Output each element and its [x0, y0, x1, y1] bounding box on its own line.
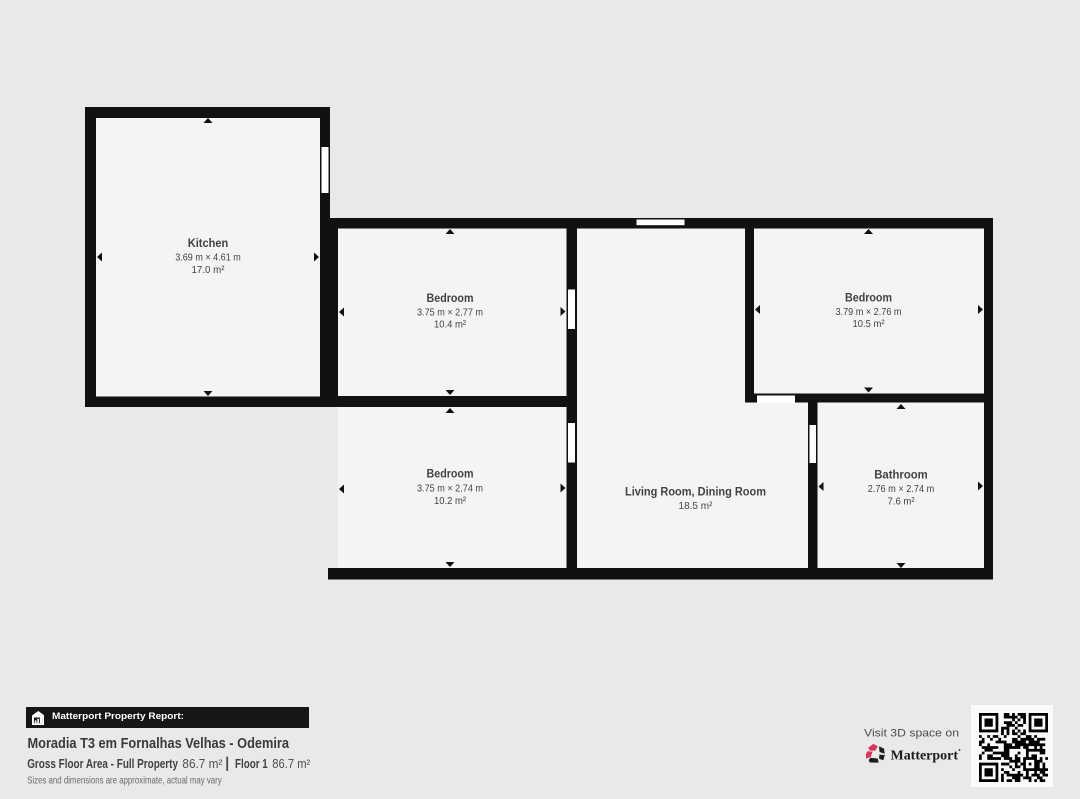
svg-text:Matterport: Matterport — [891, 748, 959, 763]
svg-text:18.5 m²: 18.5 m² — [679, 500, 713, 512]
svg-text:3.75 m × 2.77 m: 3.75 m × 2.77 m — [417, 307, 483, 319]
svg-text:3.69 m × 4.61 m: 3.69 m × 4.61 m — [175, 252, 241, 264]
svg-text:7.6 m²: 7.6 m² — [888, 496, 915, 508]
svg-text:10.4 m²: 10.4 m² — [434, 319, 466, 331]
svg-text:10.2 m²: 10.2 m² — [434, 495, 466, 507]
svg-text:10.5 m²: 10.5 m² — [853, 318, 885, 330]
svg-text:3.75 m × 2.74 m: 3.75 m × 2.74 m — [417, 483, 483, 495]
svg-text:Bathroom: Bathroom — [874, 468, 928, 482]
svg-text:Visit 3D space on: Visit 3D space on — [864, 728, 959, 740]
svg-text:Matterport Property Report:: Matterport Property Report: — [52, 711, 184, 722]
svg-text:Bedroom: Bedroom — [845, 291, 892, 305]
svg-text:Gross Floor Area - Full Proper: Gross Floor Area - Full Property86.7 m²F… — [27, 757, 310, 771]
svg-text:17.0 m²: 17.0 m² — [192, 264, 225, 276]
svg-text:Sizes and dimensions are appro: Sizes and dimensions are approximate, ac… — [27, 776, 222, 787]
svg-text:Bedroom: Bedroom — [427, 291, 474, 305]
svg-text:Living Room, Dining Room: Living Room, Dining Room — [625, 485, 766, 499]
svg-text:Kitchen: Kitchen — [188, 236, 229, 250]
svg-text:2.76 m × 2.74 m: 2.76 m × 2.74 m — [868, 483, 935, 495]
svg-text:Bedroom: Bedroom — [427, 467, 474, 481]
svg-text:Moradia T3 em Fornalhas Velhas: Moradia T3 em Fornalhas Velhas - Odemira — [28, 735, 290, 752]
svg-text:3.79 m × 2.76 m: 3.79 m × 2.76 m — [836, 306, 902, 318]
